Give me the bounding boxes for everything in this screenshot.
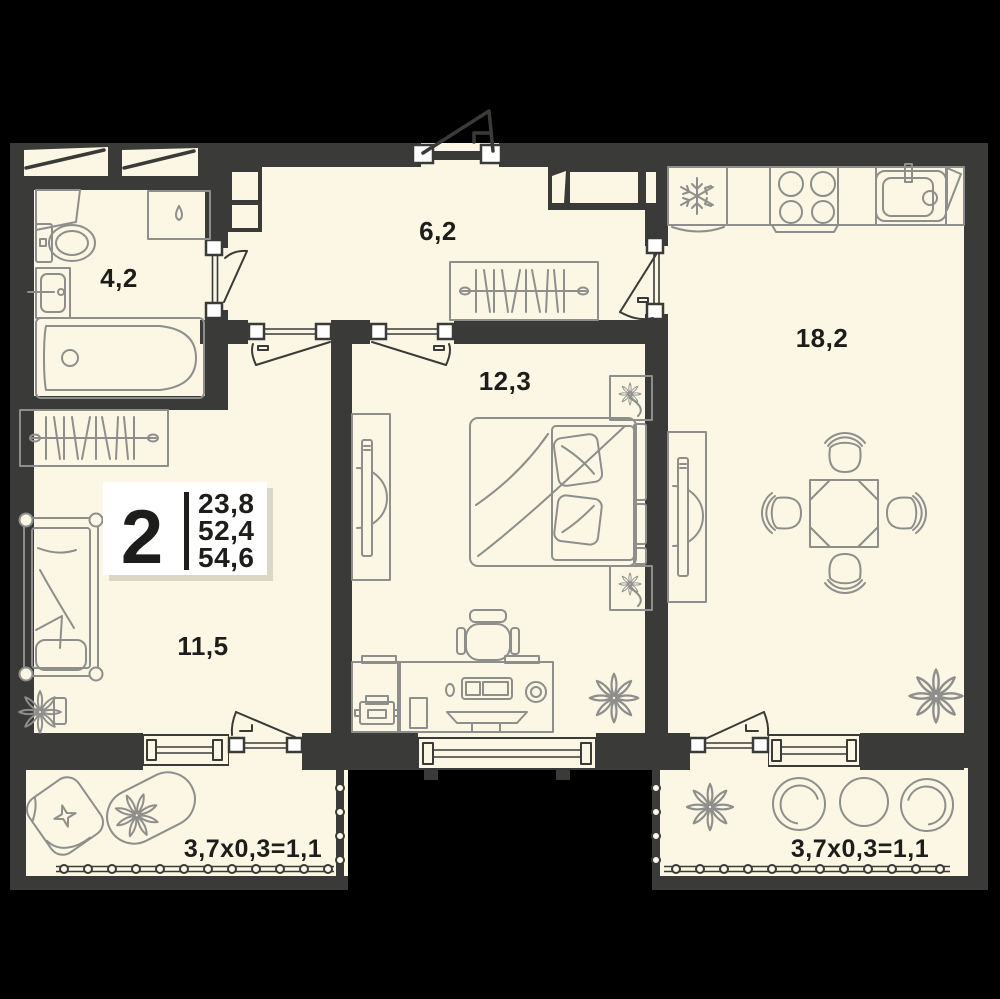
- floor-plan-svg: 2 23,8 52,4 54,6 4,2 6,2 12,3 18,2 11,5 …: [0, 0, 1000, 999]
- window-second-room: [143, 735, 229, 765]
- door-handle-icon: [474, 133, 491, 142]
- shaft-openings: [232, 172, 258, 228]
- legend-divider: [184, 492, 189, 570]
- balcony-left-label: 3,7x0,3=1,1: [184, 835, 322, 863]
- room-label-bathroom: 4,2: [100, 263, 138, 293]
- tv-icon: [362, 440, 372, 556]
- tv-icon: [678, 458, 688, 576]
- entrance-door: [413, 111, 501, 167]
- window-bedroom: [418, 738, 596, 769]
- apartment-floor: [10, 143, 988, 745]
- room-label-kitchen-living: 18,2: [796, 323, 849, 353]
- room-label-second-room: 11,5: [177, 631, 228, 661]
- legend-room-count: 2: [121, 495, 163, 580]
- legend-card: 2 23,8 52,4 54,6: [103, 482, 273, 581]
- room-label-bedroom: 12,3: [479, 366, 532, 396]
- legend-value-3: 54,6: [198, 542, 255, 573]
- floor-plan-page: 2 23,8 52,4 54,6 4,2 6,2 12,3 18,2 11,5 …: [0, 0, 1000, 999]
- room-label-hallway: 6,2: [419, 216, 457, 246]
- balcony-right-label: 3,7x0,3=1,1: [791, 835, 929, 863]
- window-kitchen: [768, 735, 860, 766]
